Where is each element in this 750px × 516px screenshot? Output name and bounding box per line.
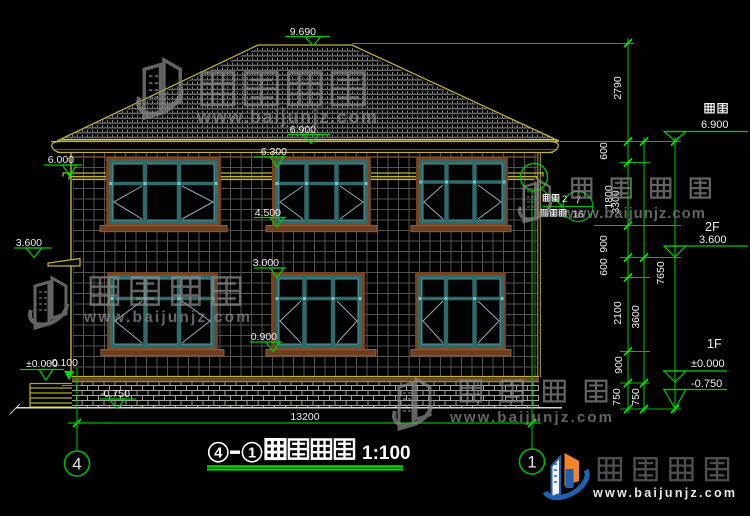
svg-text:-0.100: -0.100 xyxy=(48,357,78,369)
svg-text:2790: 2790 xyxy=(612,76,624,100)
svg-text:www.baijunjz.com: www.baijunjz.com xyxy=(561,205,705,222)
svg-text:750: 750 xyxy=(630,388,642,406)
svg-text:900: 900 xyxy=(613,356,625,374)
svg-text:4: 4 xyxy=(214,445,223,462)
svg-text:0.900: 0.900 xyxy=(251,331,277,343)
svg-text:6.300: 6.300 xyxy=(261,146,287,158)
svg-text:600: 600 xyxy=(598,258,610,276)
svg-text:13200: 13200 xyxy=(290,411,319,423)
svg-text:7650: 7650 xyxy=(655,261,667,285)
svg-text:900: 900 xyxy=(598,235,610,253)
svg-text:3.600: 3.600 xyxy=(16,237,42,249)
svg-text:-0.750: -0.750 xyxy=(100,388,130,400)
svg-text:2100: 2100 xyxy=(612,301,624,325)
svg-text:1F: 1F xyxy=(707,337,722,351)
svg-text:1: 1 xyxy=(248,445,256,462)
svg-text:2F: 2F xyxy=(705,220,720,234)
svg-text:6.000: 6.000 xyxy=(48,154,74,166)
svg-text:750: 750 xyxy=(611,388,623,406)
svg-text:600: 600 xyxy=(598,142,610,160)
svg-text:6.900: 6.900 xyxy=(701,119,729,131)
svg-text:2: 2 xyxy=(562,194,567,204)
svg-text:±0.000: ±0.000 xyxy=(691,358,725,370)
svg-text:1: 1 xyxy=(527,453,536,472)
svg-text:3.000: 3.000 xyxy=(253,257,279,269)
svg-text:3600: 3600 xyxy=(630,305,642,329)
svg-text:1:100: 1:100 xyxy=(362,443,411,464)
svg-text:4: 4 xyxy=(72,455,81,474)
svg-text:3.600: 3.600 xyxy=(699,234,727,246)
svg-text:-0.750: -0.750 xyxy=(691,378,722,390)
